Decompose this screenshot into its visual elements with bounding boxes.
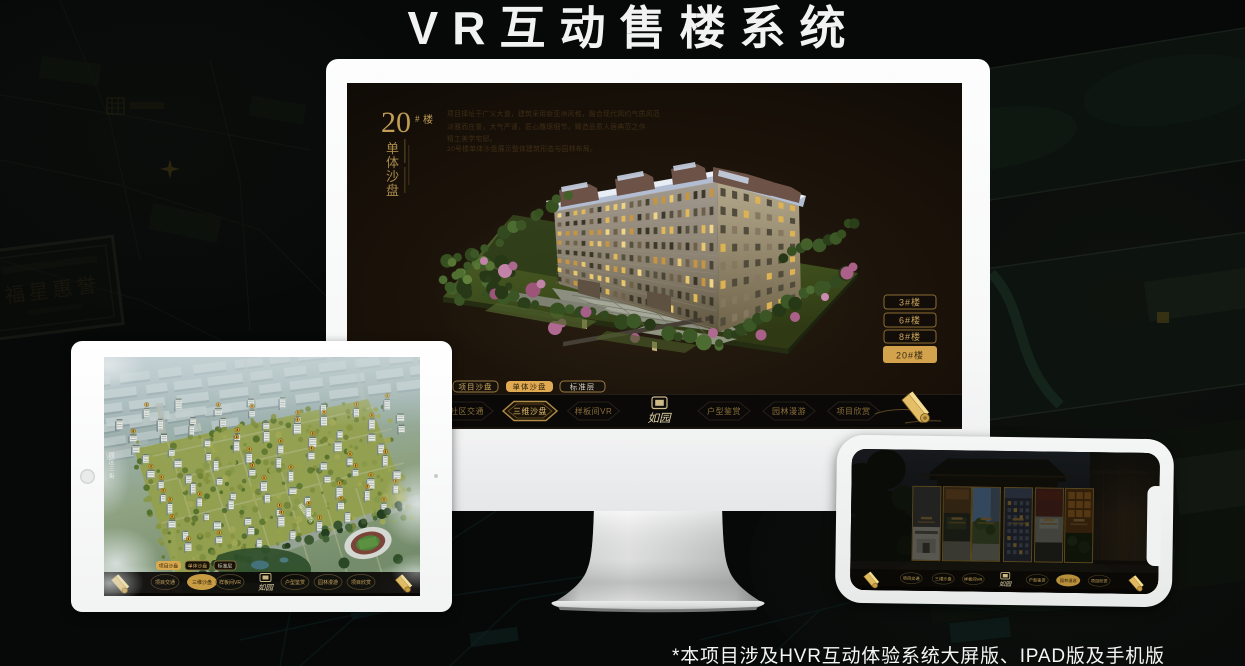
svg-text:项目沙盘: 项目沙盘 — [159, 563, 178, 570]
svg-text:淡雅而庄重，大气严谨，匠心雕琢细节，臻造品质人居典范之作: 淡雅而庄重，大气严谨，匠心雕琢细节，臻造品质人居典范之作 — [447, 122, 646, 131]
svg-text:项目沙盘: 项目沙盘 — [459, 382, 493, 392]
svg-text:如园: 如园 — [258, 583, 274, 592]
svg-text:样板间VR: 样板间VR — [575, 406, 613, 416]
svg-text:项目欣赏: 项目欣赏 — [351, 579, 371, 586]
svg-text:三: 三 — [109, 466, 115, 473]
svg-text:三维沙盘: 三维沙盘 — [513, 406, 547, 416]
svg-text:园: 园 — [109, 452, 115, 459]
svg-text:8#楼: 8#楼 — [899, 331, 921, 342]
svg-text:项目欣赏: 项目欣赏 — [837, 406, 871, 416]
svg-text:楼: 楼 — [423, 113, 433, 126]
svg-text:三维沙盘: 三维沙盘 — [192, 579, 212, 586]
svg-text:#: # — [415, 114, 420, 124]
svg-text:街: 街 — [109, 472, 115, 480]
svg-text:盘: 盘 — [386, 183, 399, 198]
svg-text:户型鉴赏: 户型鉴赏 — [707, 406, 741, 416]
svg-text:20号楼单体沙盘展示整体建筑形态与园林布局。: 20号楼单体沙盘展示整体建筑形态与园林布局。 — [447, 144, 597, 153]
svg-text:如园: 如园 — [999, 580, 1012, 588]
svg-text:体: 体 — [386, 155, 399, 170]
svg-text:标准层: 标准层 — [218, 563, 233, 570]
svg-text:样板间VR: 样板间VR — [219, 579, 241, 586]
svg-text:项目择址于广义大道，建筑采用新亚洲风格，融合现代简约气质风范: 项目择址于广义大道，建筑采用新亚洲风格，融合现代简约气质风范 — [447, 109, 660, 118]
svg-text:6#楼: 6#楼 — [899, 315, 921, 326]
svg-text:20#楼: 20#楼 — [896, 350, 924, 361]
svg-text:项目交通: 项目交通 — [155, 579, 175, 586]
svg-text:20: 20 — [381, 106, 411, 139]
svg-text:如园: 如园 — [648, 412, 672, 425]
svg-text:精工美学宅邸。: 精工美学宅邸。 — [447, 134, 497, 143]
svg-text:户型鉴赏: 户型鉴赏 — [285, 579, 305, 586]
svg-text:园林漫游: 园林漫游 — [318, 579, 338, 586]
svg-text:区: 区 — [109, 459, 115, 466]
svg-text:标准层: 标准层 — [570, 382, 596, 392]
svg-text:单体沙盘: 单体沙盘 — [188, 563, 207, 570]
svg-text:单体沙盘: 单体沙盘 — [513, 382, 547, 392]
svg-text:单: 单 — [386, 141, 399, 156]
svg-text:社区交通: 社区交通 — [450, 406, 484, 416]
svg-text:沙: 沙 — [386, 169, 399, 184]
svg-text:园林漫游: 园林漫游 — [772, 406, 806, 416]
svg-text:3#楼: 3#楼 — [899, 297, 921, 308]
